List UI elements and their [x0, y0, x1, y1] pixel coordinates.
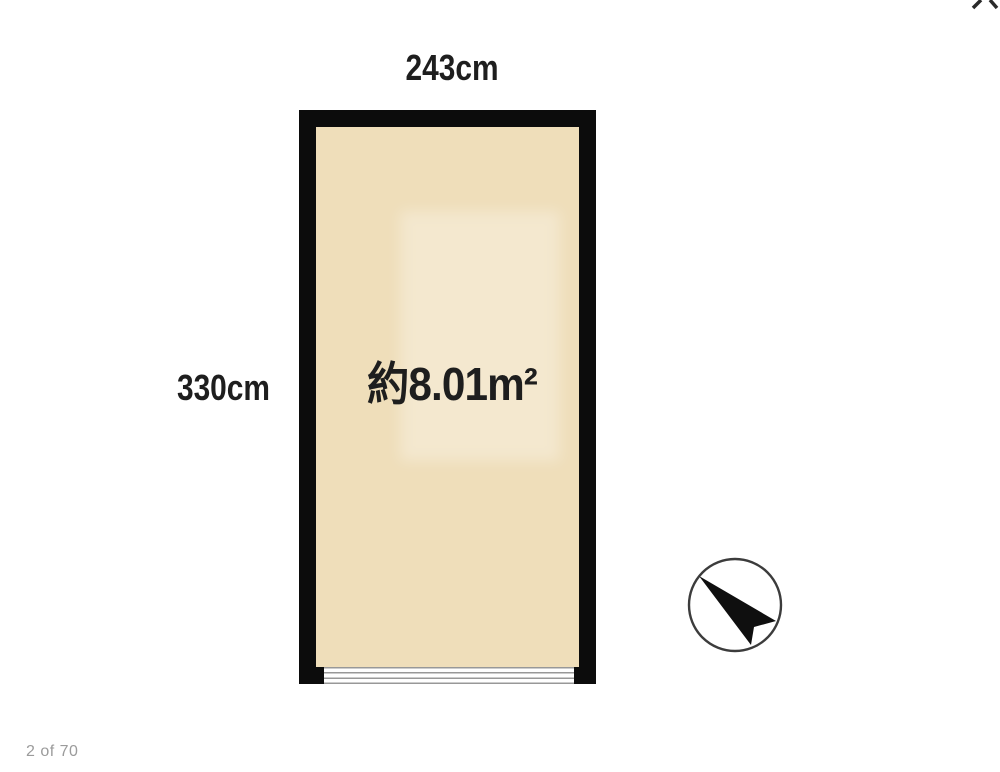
- cropped-text-fragment-icon: [966, 0, 1000, 10]
- room-area-label: 約8.01m²: [309, 354, 594, 414]
- height-dimension-label: 330cm: [104, 366, 270, 410]
- floor-highlight: [400, 211, 560, 461]
- floorplan-page: 243cm 330cm 約8.01m² 2 of 70: [0, 0, 1000, 772]
- width-dimension-label: 243cm: [328, 46, 577, 90]
- compass-needle: [699, 576, 776, 645]
- fragment-stroke-right: [990, 0, 997, 8]
- fragment-stroke-left: [973, 0, 981, 8]
- sliding-window-symbol: [324, 667, 574, 684]
- pagination-indicator: 2 of 70: [26, 743, 78, 761]
- north-arrow-icon: [683, 553, 787, 657]
